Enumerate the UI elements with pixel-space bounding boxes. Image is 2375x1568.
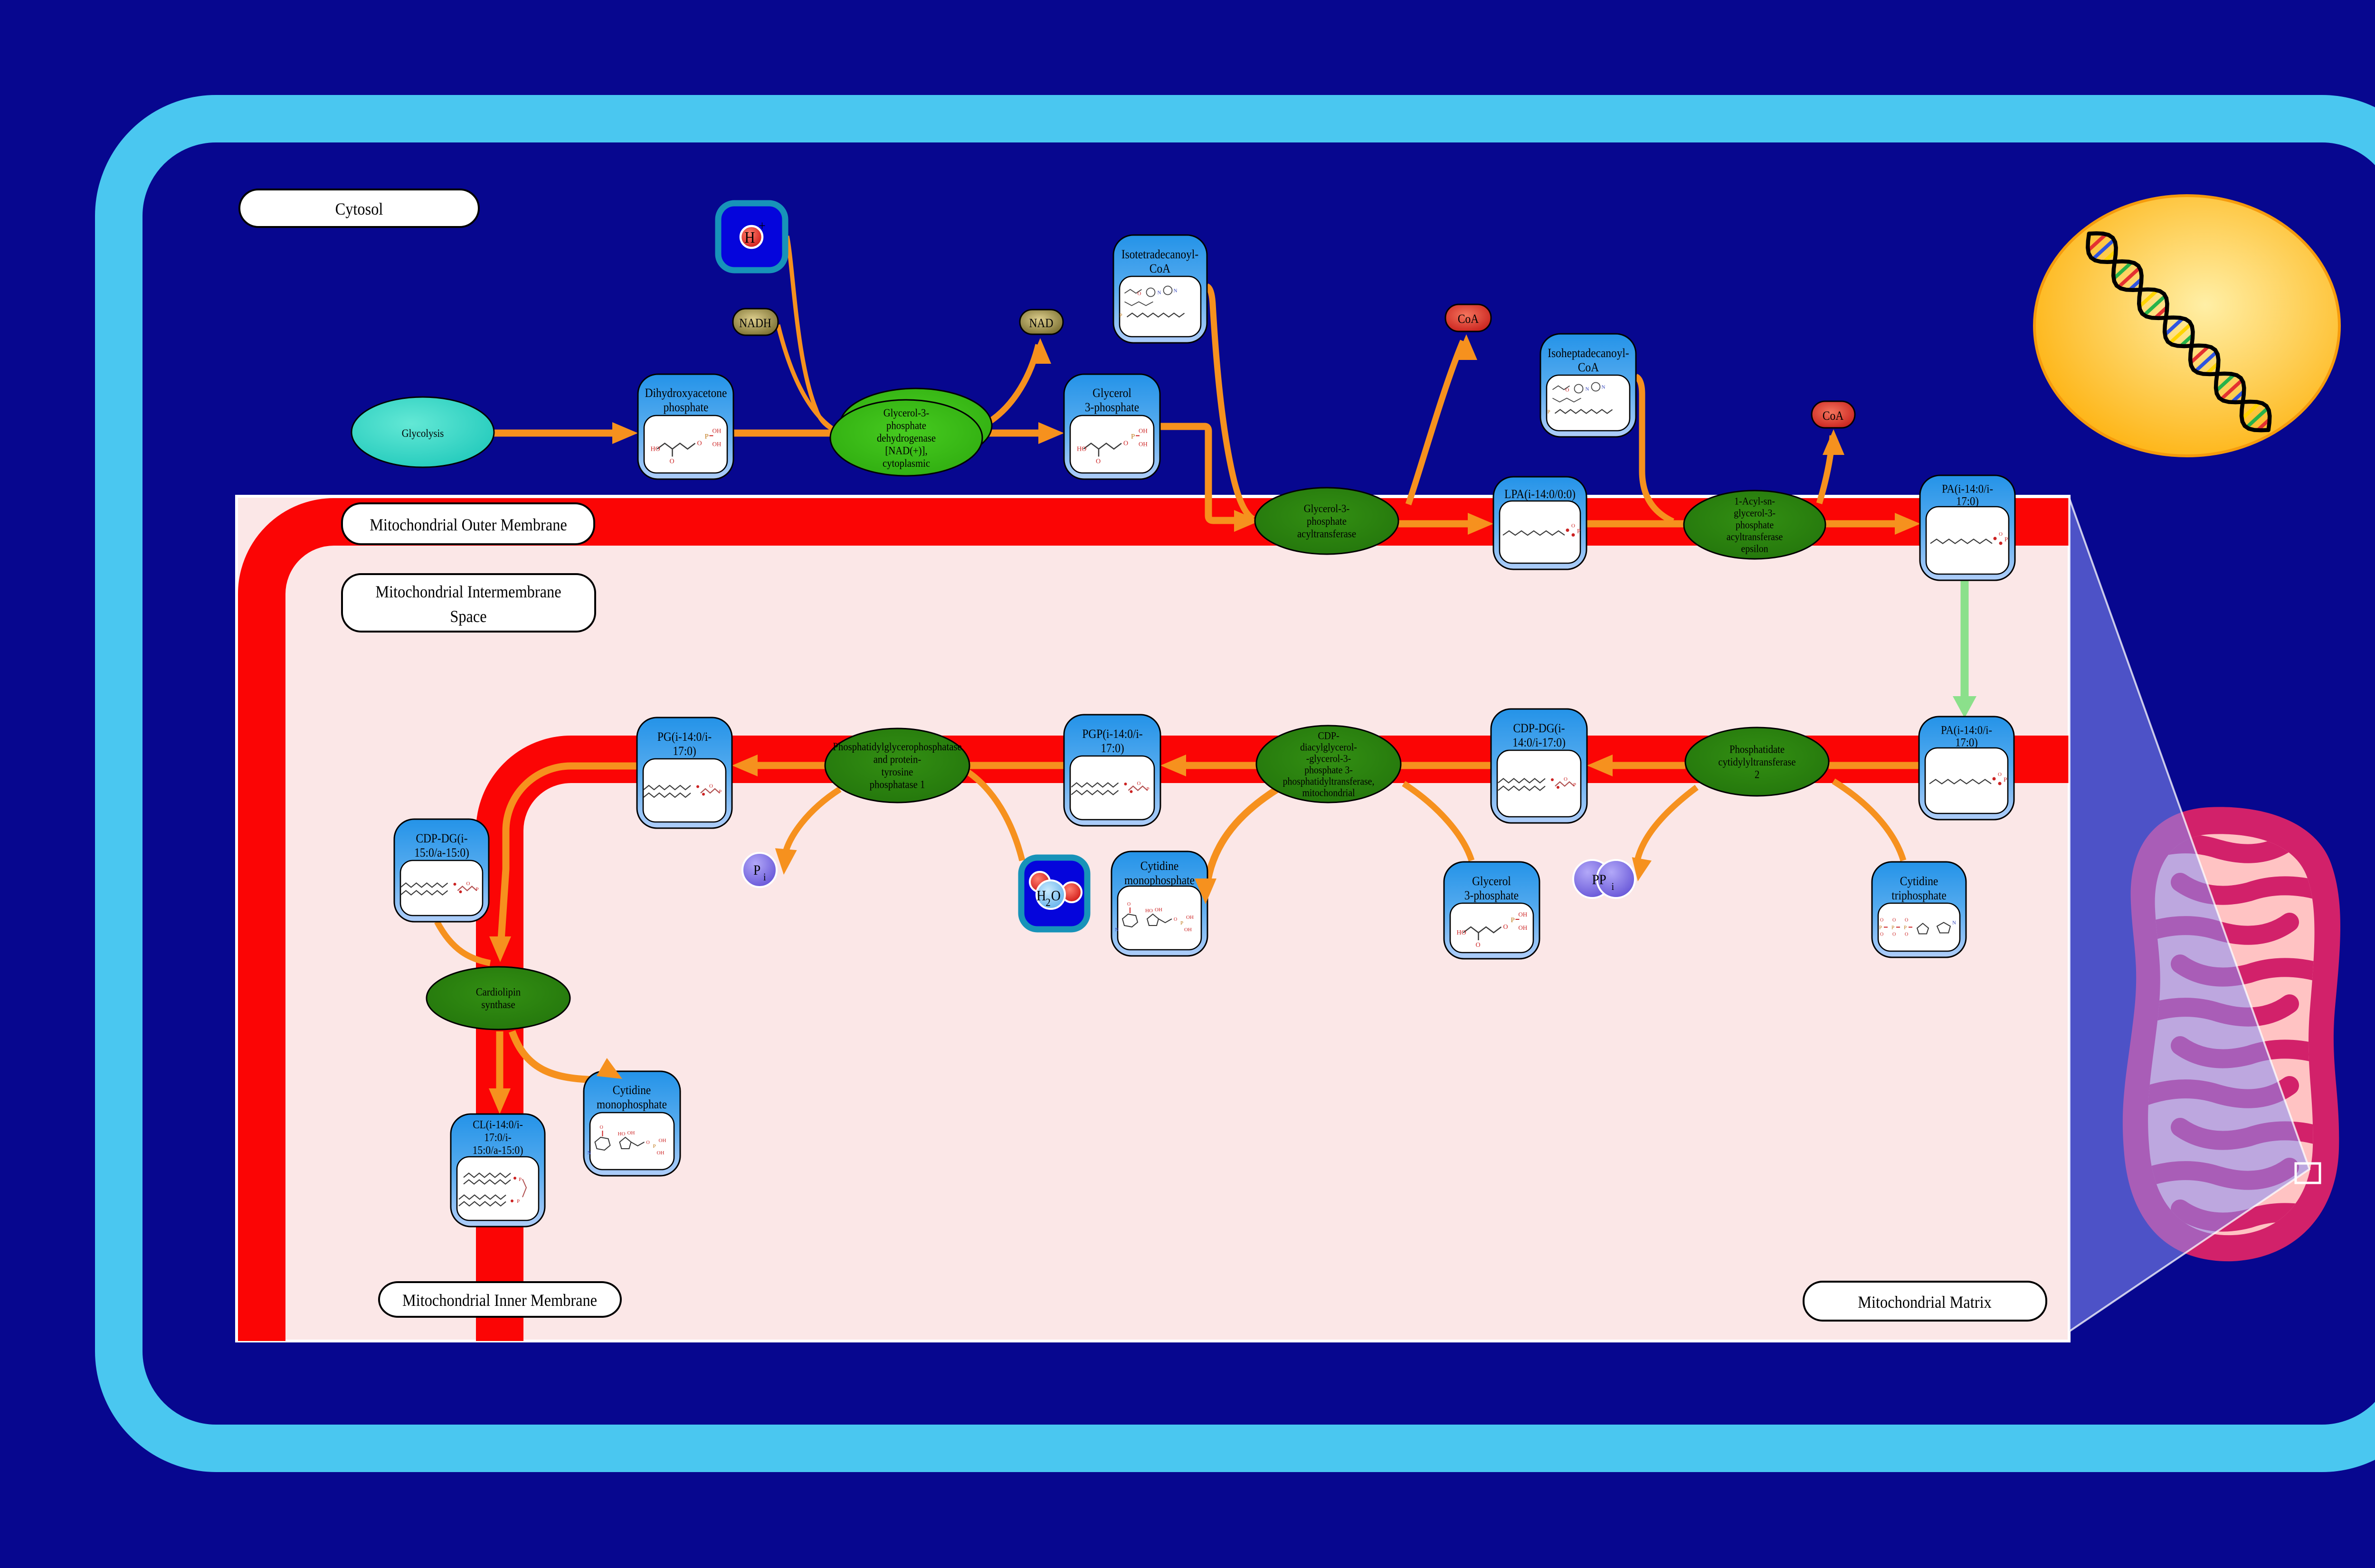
svg-text:tyrosine: tyrosine xyxy=(882,766,913,778)
svg-text:and protein-: and protein- xyxy=(874,754,921,765)
svg-text:O: O xyxy=(1999,531,2003,537)
svg-text:phosphate: phosphate xyxy=(1307,515,1347,527)
svg-text:H: H xyxy=(1036,888,1046,904)
svg-text:O: O xyxy=(1123,440,1128,447)
svg-text:P: P xyxy=(517,1199,520,1204)
svg-text:mitochondrial: mitochondrial xyxy=(1302,787,1355,799)
svg-text:P: P xyxy=(476,887,479,892)
svg-text:HO: HO xyxy=(1077,446,1086,453)
svg-text:CoA: CoA xyxy=(1578,361,1599,374)
svg-text:HO: HO xyxy=(651,446,660,453)
svg-text:PG(i-14:0/i-: PG(i-14:0/i- xyxy=(657,730,712,744)
svg-text:phosphate: phosphate xyxy=(886,419,926,431)
svg-text:OH: OH xyxy=(1186,915,1194,920)
svg-text:P: P xyxy=(1120,313,1122,319)
svg-text:O: O xyxy=(1051,888,1061,904)
svg-text:CoA: CoA xyxy=(1823,409,1843,423)
svg-text:Phosphatidylglycerophosphatase: Phosphatidylglycerophosphatase xyxy=(833,741,961,753)
svg-text:OH: OH xyxy=(1519,911,1528,918)
svg-text:Mitochondrial Inner Membrane: Mitochondrial Inner Membrane xyxy=(402,1291,597,1310)
svg-text:N: N xyxy=(1115,927,1119,933)
svg-text:P: P xyxy=(2004,536,2008,543)
svg-text:P: P xyxy=(519,1177,522,1182)
svg-text:P: P xyxy=(653,1143,656,1149)
svg-text:CDP-DG(i-: CDP-DG(i- xyxy=(416,832,467,845)
svg-text:O: O xyxy=(1127,902,1130,907)
svg-text:O: O xyxy=(697,440,702,447)
svg-text:O: O xyxy=(1566,387,1569,393)
svg-text:O: O xyxy=(1905,932,1908,937)
svg-text:P: P xyxy=(2004,776,2007,783)
svg-text:[NAD(+)],: [NAD(+)], xyxy=(885,444,927,456)
svg-text:P: P xyxy=(1147,786,1149,792)
svg-text:phosphate 3-: phosphate 3- xyxy=(1304,764,1353,776)
svg-text:Cytidine: Cytidine xyxy=(613,1084,651,1097)
svg-text:Mitochondrial Matrix: Mitochondrial Matrix xyxy=(1858,1293,1992,1312)
svg-text:O: O xyxy=(1503,924,1508,931)
svg-text:NADH: NADH xyxy=(739,317,771,330)
svg-text:3-phosphate: 3-phosphate xyxy=(1085,401,1139,414)
svg-text:acyltransferase: acyltransferase xyxy=(1727,531,1783,543)
svg-text:Phosphatidate: Phosphatidate xyxy=(1729,743,1785,755)
svg-text:PP: PP xyxy=(1592,872,1606,888)
svg-text:O: O xyxy=(1137,781,1141,786)
svg-text:OH: OH xyxy=(1139,441,1148,448)
svg-text:P: P xyxy=(1904,925,1907,931)
svg-text:Glycerol-3-: Glycerol-3- xyxy=(1304,502,1350,514)
svg-text:17:0): 17:0) xyxy=(1101,742,1124,755)
svg-text:Glycolysis: Glycolysis xyxy=(402,427,444,439)
svg-text:Space: Space xyxy=(450,607,486,626)
svg-text:HO: HO xyxy=(1145,908,1153,914)
svg-text:HO: HO xyxy=(618,1131,626,1137)
svg-text:-glycerol-3-: -glycerol-3- xyxy=(1306,753,1351,765)
svg-text:OH: OH xyxy=(1519,924,1528,931)
svg-text:17:0/i-: 17:0/i- xyxy=(484,1131,512,1143)
svg-text:O: O xyxy=(1571,523,1575,529)
svg-text:O: O xyxy=(1892,918,1896,923)
svg-text:2: 2 xyxy=(1755,768,1759,780)
svg-text:i: i xyxy=(763,871,766,883)
svg-text:CDP-DG(i-: CDP-DG(i- xyxy=(1513,722,1565,735)
svg-text:PA(i-14:0/i-: PA(i-14:0/i- xyxy=(1941,724,1992,737)
svg-text:cytoplasmic: cytoplasmic xyxy=(883,457,930,469)
svg-text:Glycerol: Glycerol xyxy=(1472,875,1511,888)
svg-text:O: O xyxy=(1476,942,1481,949)
svg-text:N: N xyxy=(588,1150,591,1156)
svg-text:15:0/a-15:0): 15:0/a-15:0) xyxy=(473,1144,523,1156)
svg-text:OH: OH xyxy=(712,441,722,448)
svg-text:N: N xyxy=(1174,288,1178,294)
svg-text:phosphatase 1: phosphatase 1 xyxy=(870,779,925,791)
svg-text:O: O xyxy=(1138,291,1141,297)
svg-text:Cytidine: Cytidine xyxy=(1900,875,1938,888)
svg-text:Mitochondrial Intermembrane: Mitochondrial Intermembrane xyxy=(375,583,561,602)
svg-text:glycerol-3-: glycerol-3- xyxy=(1734,507,1776,519)
svg-text:N: N xyxy=(1158,290,1161,296)
svg-text:NAD: NAD xyxy=(1029,317,1054,330)
svg-text:epsilon: epsilon xyxy=(1741,543,1768,555)
svg-text:P: P xyxy=(1891,925,1894,931)
svg-text:OH: OH xyxy=(1139,427,1148,435)
svg-text:O: O xyxy=(1892,932,1896,937)
svg-text:OH: OH xyxy=(659,1138,666,1143)
svg-text:H: H xyxy=(744,228,755,246)
svg-text:cytidylyltransferase: cytidylyltransferase xyxy=(1718,756,1795,768)
svg-text:CDP-: CDP- xyxy=(1318,730,1339,742)
svg-text:O: O xyxy=(600,1125,603,1130)
svg-text:phosphate: phosphate xyxy=(1736,519,1774,531)
svg-text:P: P xyxy=(1879,925,1882,931)
svg-text:CL(i-14:0/i-: CL(i-14:0/i- xyxy=(473,1118,523,1131)
svg-text:OH: OH xyxy=(1155,907,1162,913)
svg-text:monophosphate: monophosphate xyxy=(597,1098,667,1111)
svg-text:CoA: CoA xyxy=(1149,262,1170,275)
svg-text:P: P xyxy=(719,789,722,795)
svg-text:OH: OH xyxy=(1184,927,1192,933)
svg-text:PA(i-14:0/i-: PA(i-14:0/i- xyxy=(1942,482,1993,495)
svg-text:N: N xyxy=(1586,387,1589,392)
svg-text:P: P xyxy=(705,433,709,441)
svg-text:O: O xyxy=(670,458,674,465)
svg-text:N: N xyxy=(1602,385,1605,390)
svg-text:PGP(i-14:0/i-: PGP(i-14:0/i- xyxy=(1082,727,1142,741)
svg-text:Isoheptadecanoyl-: Isoheptadecanoyl- xyxy=(1548,347,1629,360)
svg-text:i: i xyxy=(1612,880,1615,892)
svg-text:OH: OH xyxy=(627,1130,635,1136)
svg-text:Glycerol: Glycerol xyxy=(1092,387,1131,400)
svg-text:O: O xyxy=(709,784,713,789)
svg-text:phosphate: phosphate xyxy=(664,401,709,414)
svg-text:P: P xyxy=(1180,920,1183,926)
svg-text:OH: OH xyxy=(712,427,722,435)
svg-text:Isotetradecanoyl-: Isotetradecanoyl- xyxy=(1121,248,1198,261)
svg-text:O: O xyxy=(1905,918,1908,923)
svg-text:15:0/a-15:0): 15:0/a-15:0) xyxy=(414,846,469,860)
svg-text:Cardiolipin: Cardiolipin xyxy=(476,986,521,998)
svg-text:monophosphate: monophosphate xyxy=(1124,874,1195,887)
svg-text:O: O xyxy=(1096,458,1101,465)
svg-text:Glycerol-3-: Glycerol-3- xyxy=(883,407,930,419)
svg-text:O: O xyxy=(646,1140,650,1145)
svg-text:diacylglycerol-: diacylglycerol- xyxy=(1300,741,1357,753)
svg-text:P: P xyxy=(1573,782,1576,788)
svg-text:Cytosol: Cytosol xyxy=(335,200,383,219)
svg-text:Cytidine: Cytidine xyxy=(1140,860,1179,873)
svg-text:O: O xyxy=(1880,918,1883,923)
svg-text:17:0): 17:0) xyxy=(673,745,696,758)
svg-text:O: O xyxy=(1998,772,2002,777)
svg-text:O: O xyxy=(1174,917,1177,922)
svg-text:P: P xyxy=(1577,528,1580,535)
svg-text:OH: OH xyxy=(657,1150,665,1156)
svg-text:P: P xyxy=(1511,916,1515,924)
svg-text:HO: HO xyxy=(1457,929,1466,936)
svg-text:3-phosphate: 3-phosphate xyxy=(1464,889,1519,902)
svg-text:phosphatidyltransferase,: phosphatidyltransferase, xyxy=(1283,775,1375,787)
svg-text:Mitochondrial Outer Membrane: Mitochondrial Outer Membrane xyxy=(370,516,567,535)
svg-text:triphosphate: triphosphate xyxy=(1891,889,1947,902)
svg-text:P: P xyxy=(753,863,760,878)
svg-text:N: N xyxy=(1952,920,1956,926)
svg-text:synthase: synthase xyxy=(481,999,515,1011)
svg-text:P: P xyxy=(1131,433,1135,441)
svg-text:CoA: CoA xyxy=(1458,312,1479,326)
svg-text:dehydrogenase: dehydrogenase xyxy=(877,432,936,444)
svg-text:O: O xyxy=(466,881,470,887)
svg-text:acyltransferase: acyltransferase xyxy=(1297,528,1356,539)
svg-text:Dihydroxyacetone: Dihydroxyacetone xyxy=(645,387,727,400)
svg-text:2: 2 xyxy=(1045,897,1050,908)
svg-text:P: P xyxy=(1548,409,1550,415)
svg-text:LPA(i-14:0/0:0): LPA(i-14:0/0:0) xyxy=(1504,488,1576,501)
svg-text:14:0/i-17:0): 14:0/i-17:0) xyxy=(1512,736,1566,749)
svg-text:O: O xyxy=(1880,932,1883,937)
svg-text:O: O xyxy=(1564,776,1567,782)
svg-text:+: + xyxy=(759,218,765,234)
svg-text:1-Acyl-sn-: 1-Acyl-sn- xyxy=(1734,495,1775,507)
